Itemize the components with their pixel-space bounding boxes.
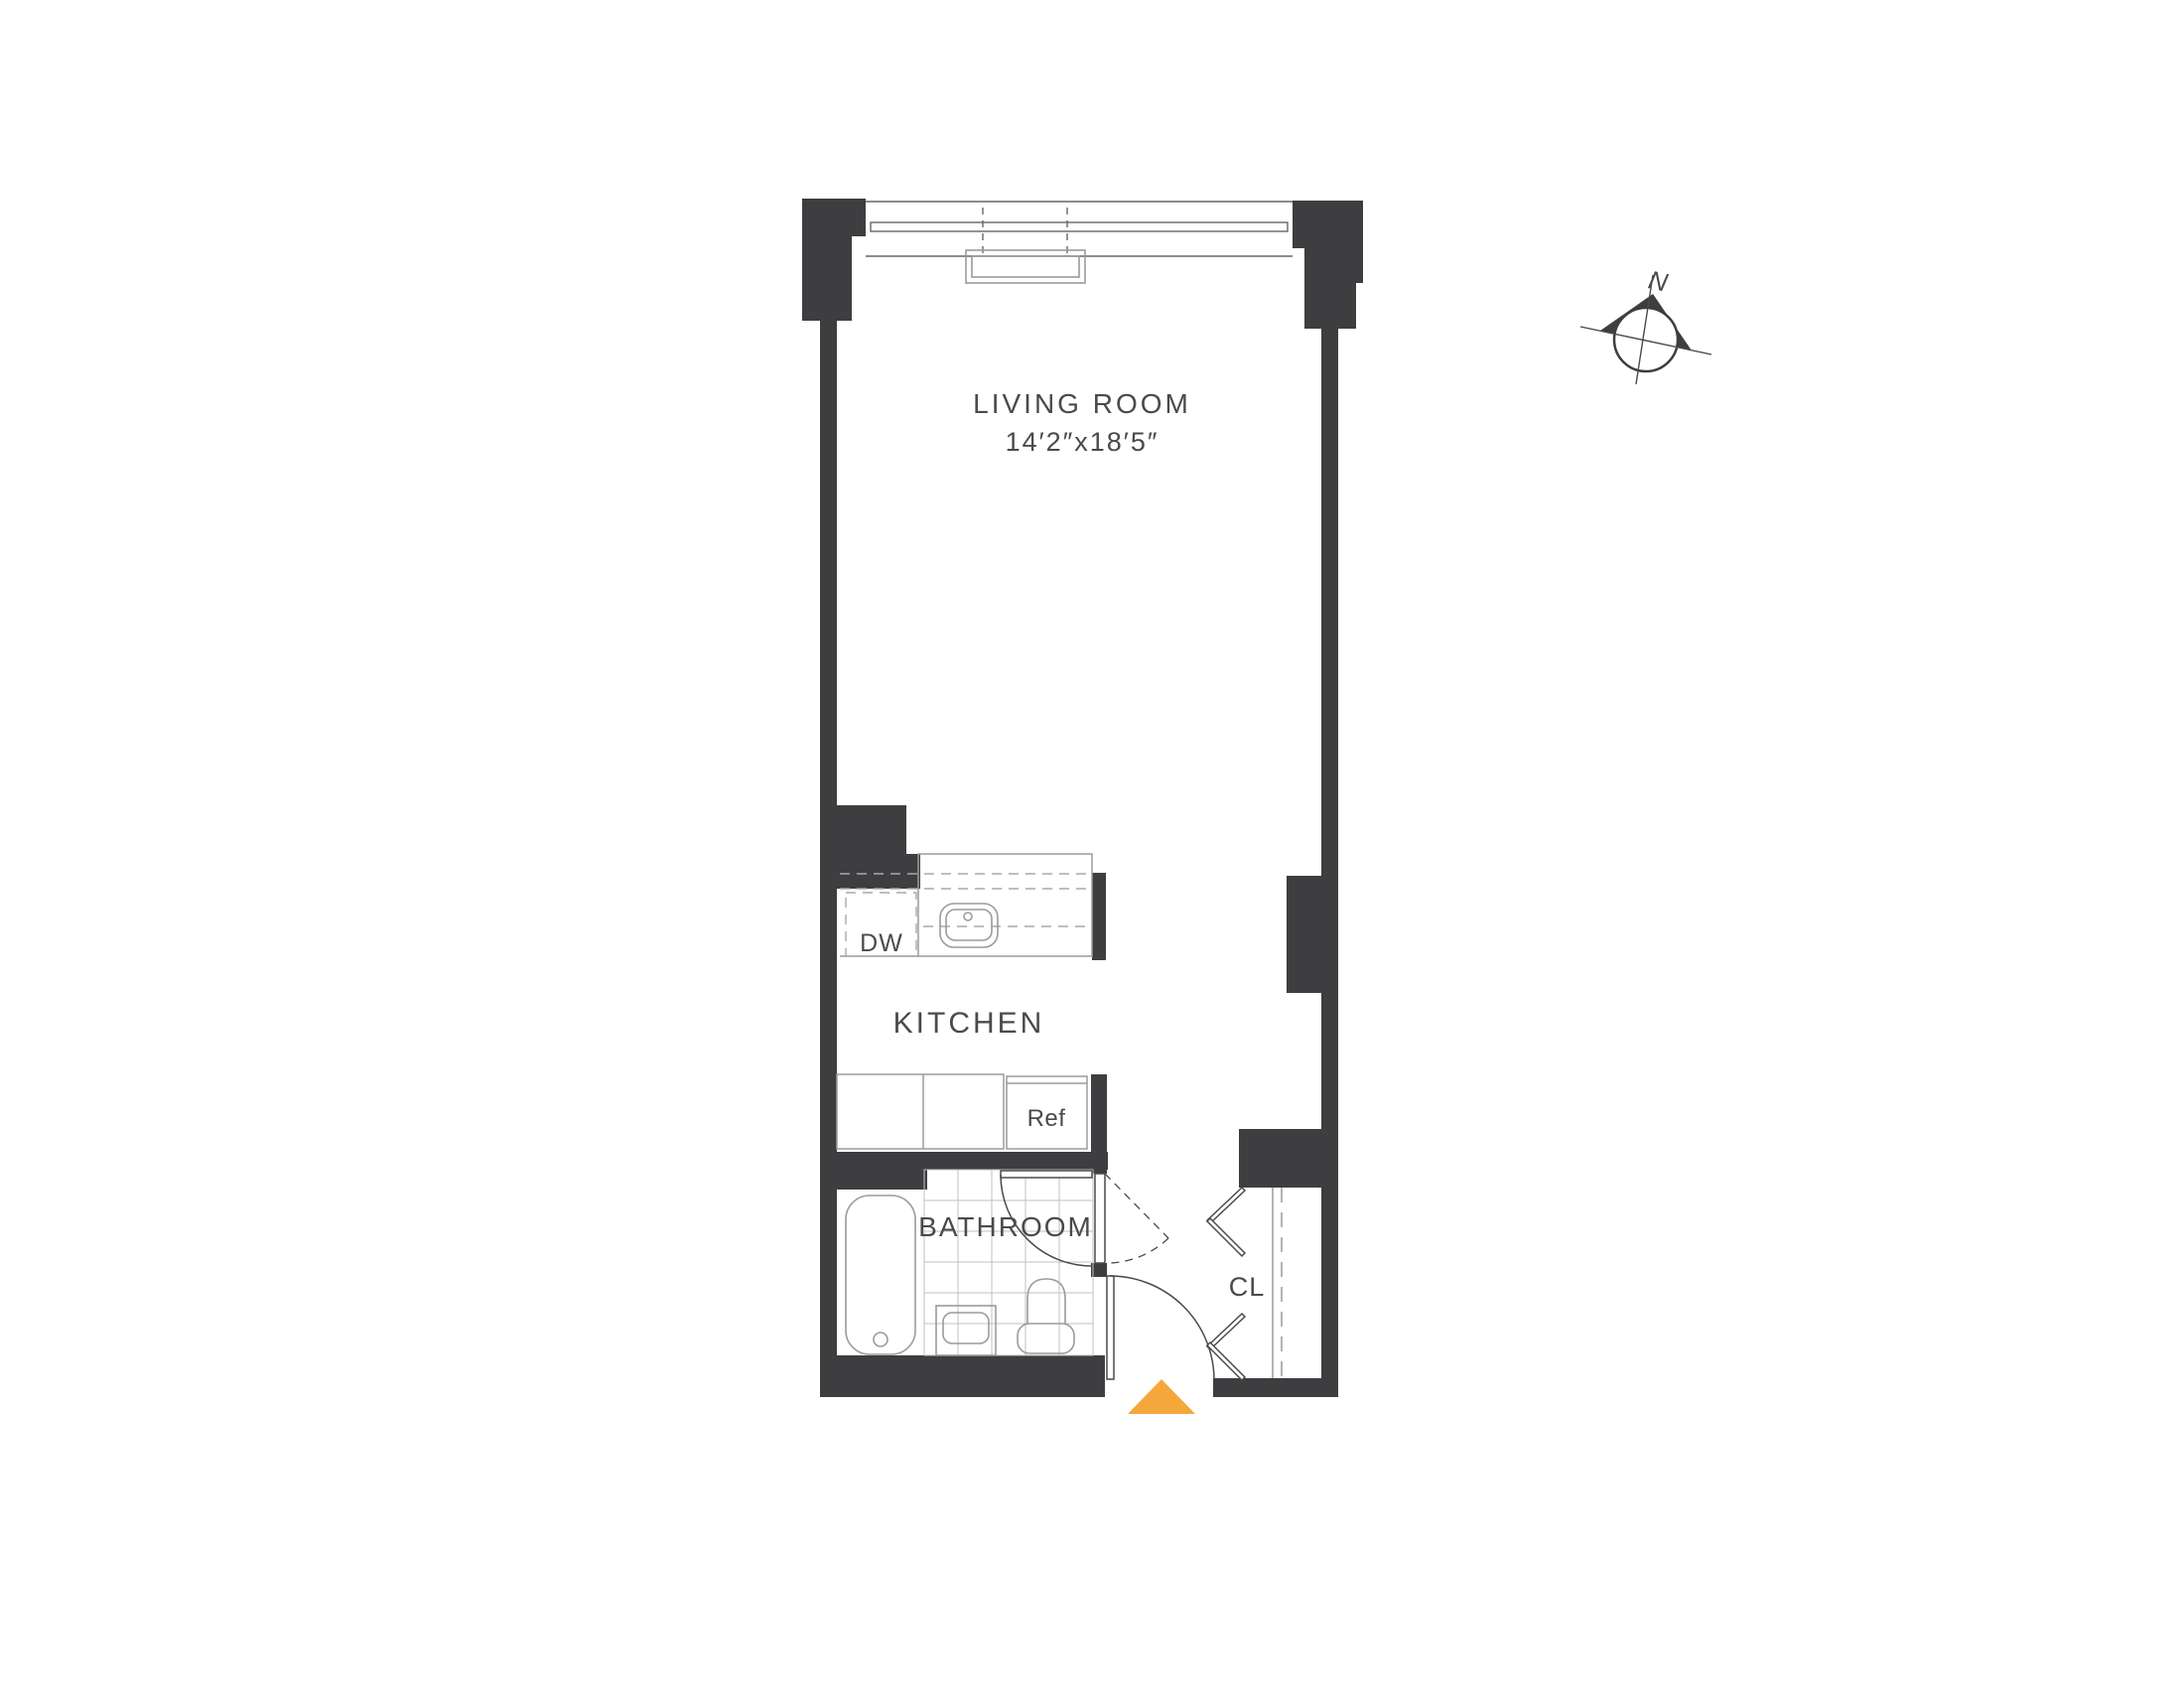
wall-segment [820,854,920,889]
lower-counter [837,1074,1004,1149]
wall-segment [1287,876,1322,993]
window-glazing [871,222,1288,231]
entry-door [1107,1276,1214,1380]
refrigerator-label: Ref [1027,1105,1066,1132]
bifold-panel [1207,1188,1245,1223]
toilet [1018,1279,1074,1353]
entry-door-arc [1110,1276,1214,1380]
wall-segment [1321,328,1338,1397]
kitchen-sink [940,904,998,947]
entry-marker [1128,1379,1195,1414]
north-label: N [1646,264,1671,297]
living-room-dimensions: 14′2″x18′5″ [1006,427,1160,457]
entry-door-leaf [1107,1276,1114,1379]
sink-inner [946,910,992,940]
wall-segment [1304,248,1363,283]
wall-segment [820,1355,1105,1397]
closet: CL [1207,1188,1282,1380]
kitchen-lower-counter: Ref [837,1074,1087,1149]
wall-segment [820,805,906,857]
compass: N [1580,264,1711,384]
ac-unit-inner [972,256,1079,277]
wall-segment [1213,1378,1338,1397]
ac-unit-outer [966,250,1085,283]
wall-segment [1293,201,1363,248]
bathtub [846,1196,915,1354]
bathroom-vanity [936,1306,996,1355]
bifold-panel [1207,1218,1245,1256]
ac-unit [966,250,1085,283]
living-room-label: LIVING ROOM [973,388,1191,419]
bathroom-door-swing-arc [1110,1238,1168,1263]
vanity-basin [943,1313,989,1343]
bathroom-door-swing-dash [1105,1174,1168,1238]
kitchen-label: KITCHEN [893,1007,1045,1040]
floor-plan-svg: DW Ref KITCHEN [0,0,2184,1688]
wall-segment [1239,1129,1338,1188]
dishwasher-label: DW [860,929,903,957]
sink-faucet [964,913,972,920]
wall-segment [820,1152,1108,1170]
floor-plan-canvas: DW Ref KITCHEN [0,0,2184,1688]
wall-segment [1091,1074,1107,1174]
dishwasher: DW [846,893,916,957]
wall-segment [1092,873,1106,960]
toilet-bowl [1018,1324,1074,1353]
bathroom-label: BATHROOM [918,1211,1093,1242]
bathtub-outline [846,1196,915,1354]
wall-segment [1304,283,1356,329]
window [866,202,1293,256]
wall-segment [802,199,852,321]
bathroom-door-closed-leaf [1095,1174,1105,1263]
bathtub-drain [874,1333,887,1346]
refrigerator: Ref [1007,1076,1087,1149]
closet-label: CL [1229,1272,1266,1302]
bathroom-door-leaf [1001,1171,1092,1178]
bifold-panel [1207,1314,1245,1349]
countertop [918,854,1092,956]
